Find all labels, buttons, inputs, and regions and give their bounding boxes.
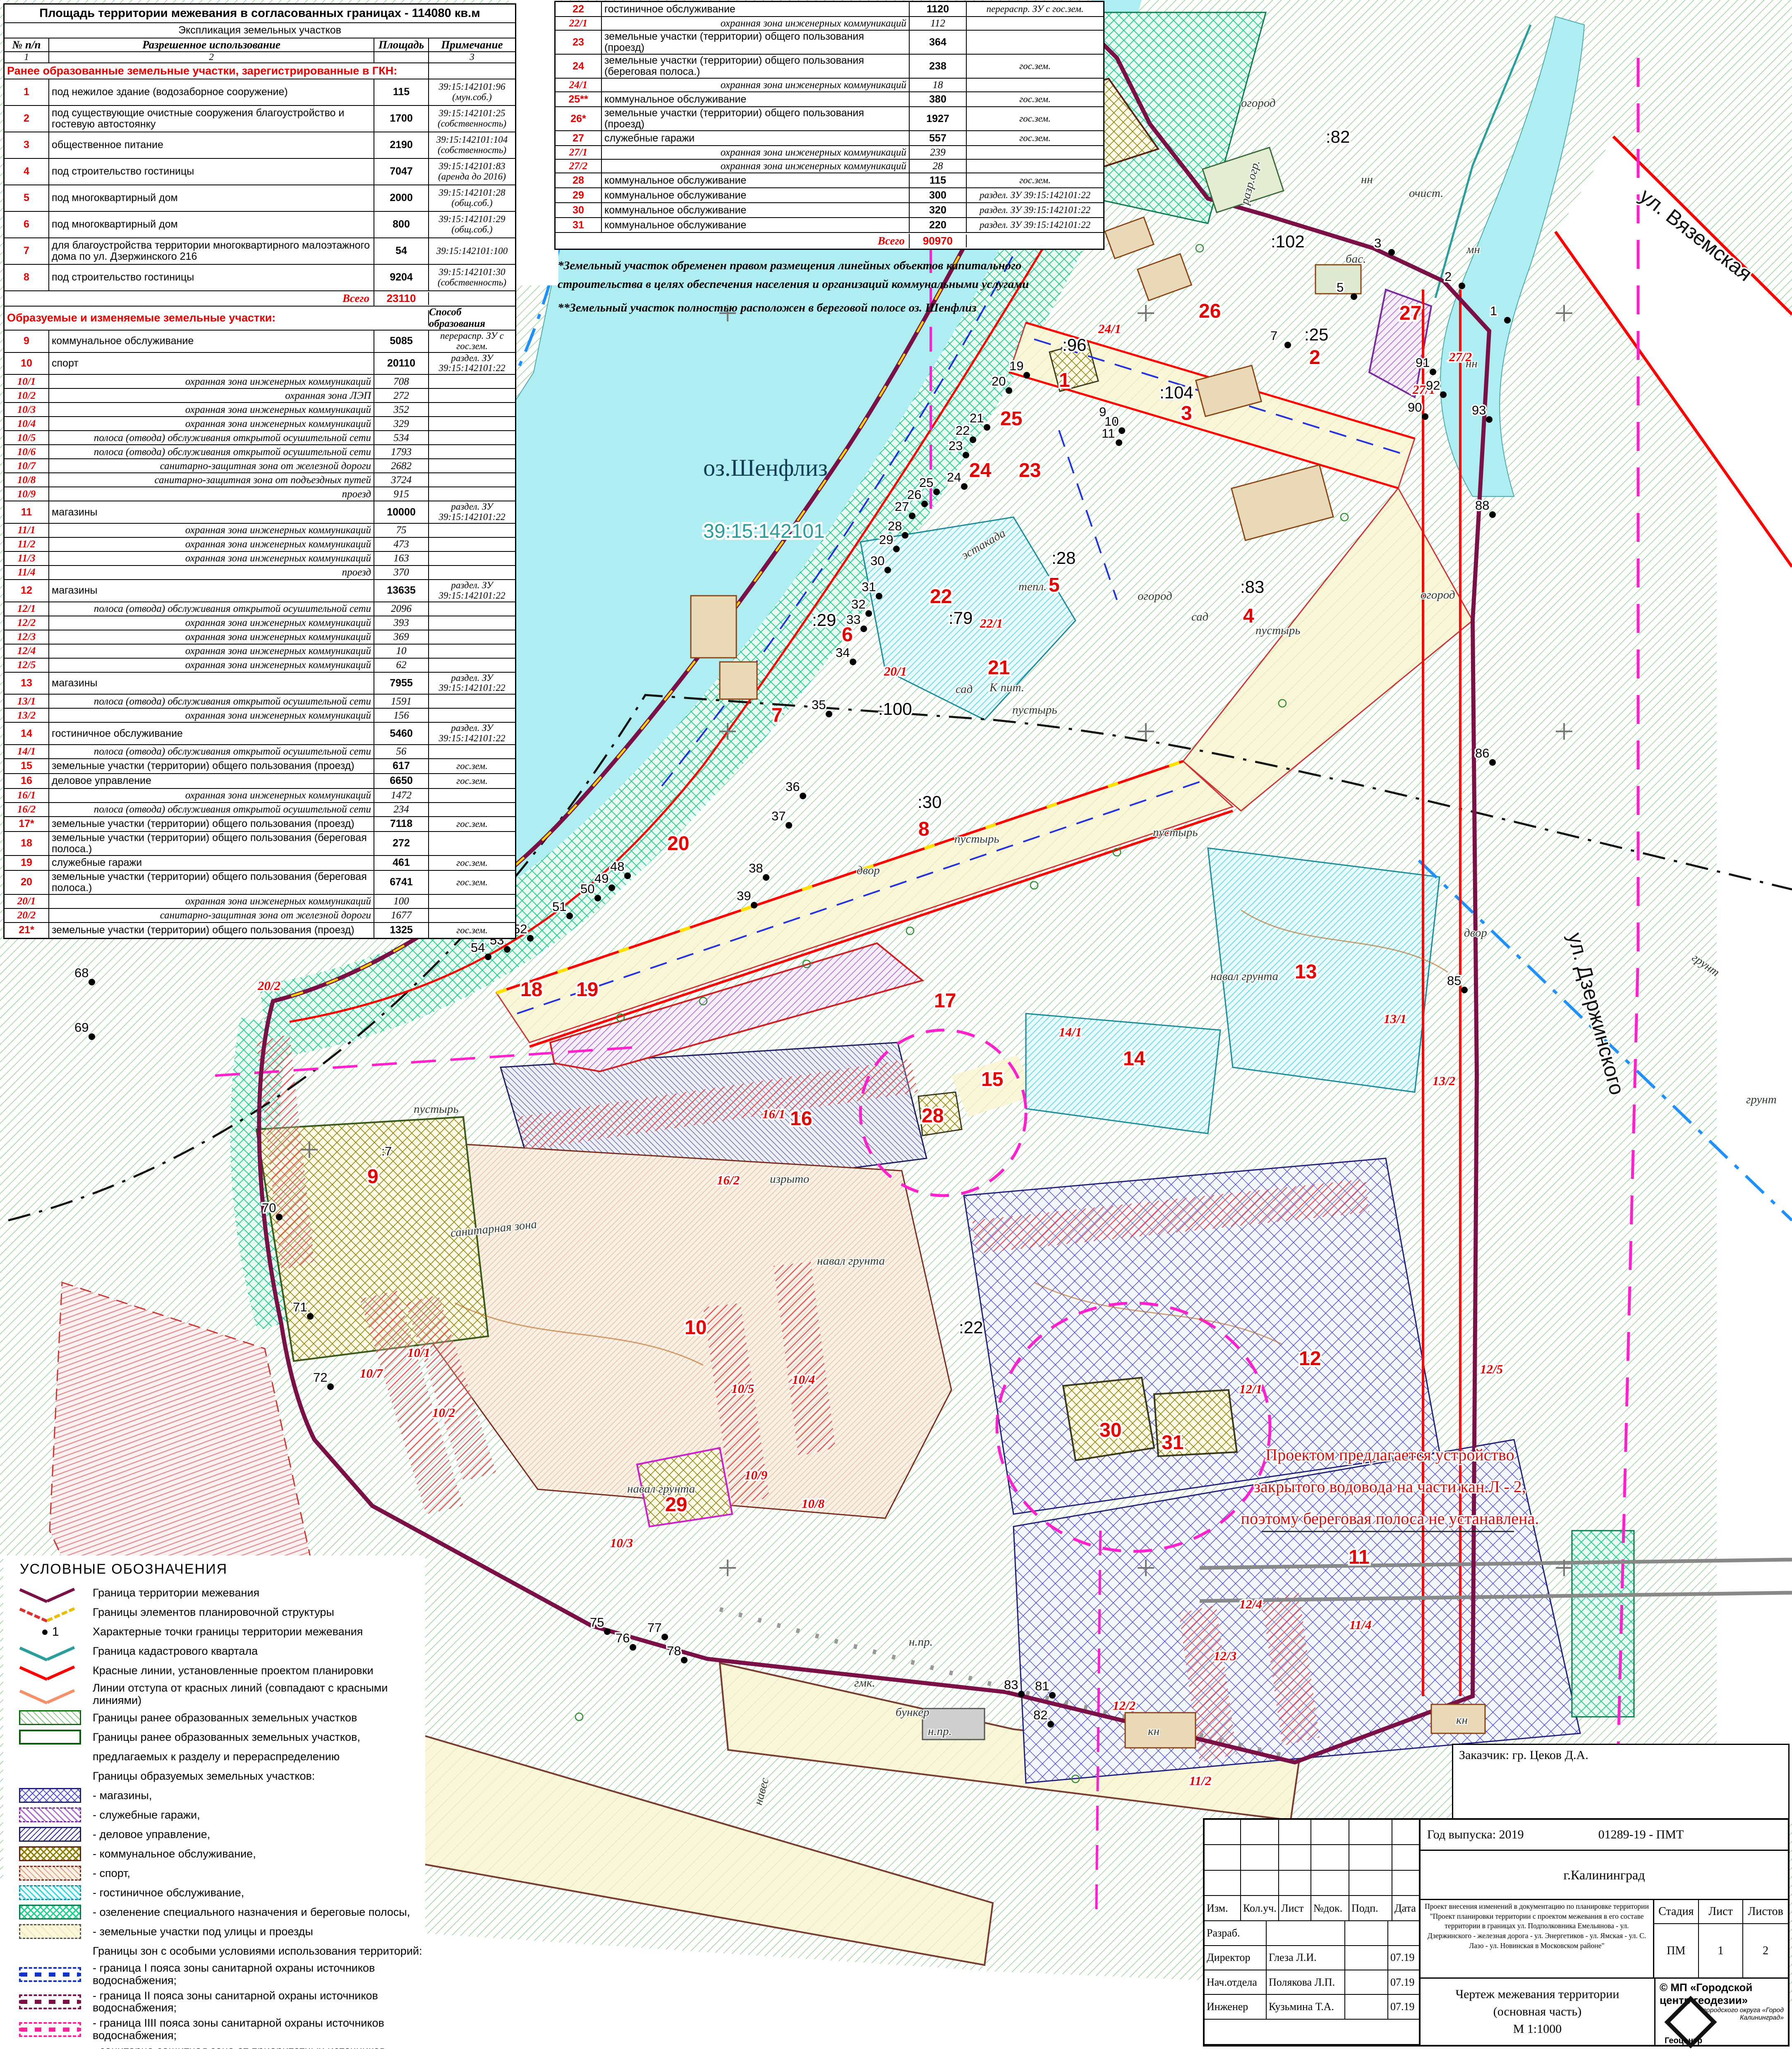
area-value: 800 xyxy=(374,212,429,237)
legend-label: Граница кадастрового квартала xyxy=(93,1645,258,1658)
staff-role: Директор xyxy=(1205,1946,1267,1970)
map-label: Проектом предлагается устройство xyxy=(1265,1445,1514,1464)
staff-sign xyxy=(1345,1995,1388,2018)
legend-item: Границы элементов планировочной структур… xyxy=(7,1604,425,1621)
permitted-use: коммунальное обслуживание xyxy=(602,203,910,217)
map-label: 12/5 xyxy=(1480,1362,1503,1376)
stamp-col-data: Дата xyxy=(1392,1896,1418,1920)
map-label: :28 xyxy=(1052,548,1076,568)
area-value: 1677 xyxy=(374,909,429,922)
stamp-project-row: Проект внесения изменений в документацию… xyxy=(1421,1900,1788,1979)
parcel-number: 6 xyxy=(5,212,49,237)
col-header-use: Разрешенное использование xyxy=(49,38,374,51)
total-value: 90970 xyxy=(910,235,967,247)
footnote: **Земельный участок полностью расположен… xyxy=(558,299,1108,317)
table-row: 13/1полоса (отвода) обслуживания открыто… xyxy=(5,695,515,709)
boundary-point-dot xyxy=(1023,372,1030,379)
map-label: 76 xyxy=(616,1631,630,1645)
boundary-point-dot xyxy=(89,1033,95,1040)
map-label: 4 xyxy=(1243,605,1254,627)
map-label: 30 xyxy=(870,554,884,568)
note-value: раздел. ЗУ 39:15:142101:22 xyxy=(429,580,515,602)
staff-role: Разраб. xyxy=(1205,1921,1267,1945)
map-label: 35 xyxy=(812,697,826,712)
note-value: 39:15:142101:104 (собственность) xyxy=(429,132,515,158)
map-label: бас. xyxy=(1346,252,1366,266)
permitted-use: санитарно-защитная зона от железной доро… xyxy=(49,909,374,922)
boundary-point-dot xyxy=(800,793,806,799)
boundary-point-dot xyxy=(89,979,95,985)
map-label: 14/1 xyxy=(1059,1025,1082,1039)
total-label: Всего xyxy=(556,234,910,248)
map-label: :100 xyxy=(878,699,912,719)
map-label: н.пр. xyxy=(928,1725,952,1738)
parcel-number: 21* xyxy=(5,923,49,938)
legend-swatch-icon xyxy=(19,1905,81,1920)
parcel-number: 17* xyxy=(5,817,49,831)
staff-date: 07.19 xyxy=(1388,1995,1418,2018)
permitted-use: полоса (отвода) обслуживания открытой ос… xyxy=(49,745,374,758)
table-row: 16/1охранная зона инженерных коммуникаци… xyxy=(5,789,515,803)
map-label: 91 xyxy=(1416,355,1430,370)
permitted-use: охранная зона инженерных коммуникаций xyxy=(49,524,374,537)
map-label: нн xyxy=(1466,357,1478,370)
note-value xyxy=(967,160,1103,173)
map-label: 10/8 xyxy=(802,1496,825,1511)
map-label: 26 xyxy=(907,487,921,502)
parcel-number: 22 xyxy=(556,2,602,16)
area-value: 18 xyxy=(910,79,967,91)
boundary-point-dot xyxy=(850,659,856,665)
parcel-number: 2 xyxy=(5,106,49,132)
map-label: пустырь xyxy=(954,832,999,846)
parcel-number: 29 xyxy=(556,188,602,202)
parcel-number: 13 xyxy=(5,673,49,694)
map-label: навал грунта xyxy=(1210,970,1278,983)
map-label: 78 xyxy=(667,1644,681,1658)
table-row: 29коммунальное обслуживание300раздел. ЗУ… xyxy=(556,188,1103,203)
legend-item: - граница II пояса зоны санитарной охран… xyxy=(7,1990,425,2014)
note-value: гос.зем. xyxy=(429,759,515,773)
map-label: 3 xyxy=(1374,236,1381,250)
table-row: 12/2охранная зона инженерных коммуникаци… xyxy=(5,616,515,630)
note-value: 39:15:142101:25 (собственность) xyxy=(429,106,515,132)
map-label: 69 xyxy=(74,1020,89,1035)
stamp-year: Год выпуска: 2019 xyxy=(1427,1828,1524,1842)
map-label: 38 xyxy=(749,861,763,875)
map-label: 30 xyxy=(1100,1419,1121,1441)
building-kn xyxy=(1125,1713,1195,1748)
table-row: 31коммунальное обслуживание220раздел. ЗУ… xyxy=(556,218,1103,233)
legend-swatch-icon: ● 1 xyxy=(19,1625,81,1639)
map-label: 10/9 xyxy=(745,1468,767,1482)
boundary-point-dot xyxy=(786,822,792,829)
table-row: 10/8санитарно-защитная зона от подъездны… xyxy=(5,473,515,487)
legend-item: - деловое управление, xyxy=(7,1826,425,1843)
boundary-point-dot xyxy=(1006,387,1012,394)
legend-label: предлагаемых к разделу и перераспределен… xyxy=(93,1751,340,1763)
area-value: 54 xyxy=(374,238,429,264)
legend-label: - санитарно-защитная зона от приоритетны… xyxy=(93,2045,425,2049)
stamp-project-desc: Проект внесения изменений в документацию… xyxy=(1421,1900,1654,1977)
parcel-number: 10/9 xyxy=(5,487,49,501)
colnum-3: 3 xyxy=(429,52,515,62)
map-label: 13/1 xyxy=(1384,1011,1406,1026)
area-value: 3724 xyxy=(374,473,429,486)
map-label: 90 xyxy=(1408,400,1422,415)
area-value: 62 xyxy=(374,659,429,672)
legend-swatch-icon xyxy=(19,1605,81,1620)
note-value xyxy=(429,645,515,658)
org-cell: © МП «Городской центр геодезии» городско… xyxy=(1655,1979,1788,2045)
legend-item: - граница IIII пояса зоны санитарной охр… xyxy=(7,2017,425,2042)
parcel-number: 11/4 xyxy=(5,566,49,579)
map-label: 24/1 xyxy=(1098,321,1121,336)
area-value: 461 xyxy=(374,856,429,870)
boundary-point-dot xyxy=(624,872,631,879)
note-value xyxy=(429,524,515,537)
legend-label: Границы ранее образованных земельных уча… xyxy=(93,1731,360,1744)
parcel-number: 10/1 xyxy=(5,375,49,388)
staff-sign xyxy=(1345,1970,1388,1994)
area-value: 7955 xyxy=(374,673,429,694)
parcel-number: 7 xyxy=(5,238,49,264)
stamp-right: Год выпуска: 2019 01289-19 - ПМТ г.Калин… xyxy=(1421,1820,1788,2045)
boundary-point-dot xyxy=(661,1634,668,1640)
map-label: 12/3 xyxy=(1214,1649,1236,1663)
map-label: :79 xyxy=(949,608,973,628)
legend-label: - граница II пояса зоны санитарной охран… xyxy=(93,1990,425,2014)
table-row: 10/1охранная зона инженерных коммуникаци… xyxy=(5,375,515,389)
table2-body: 22гостиничное обслуживание1120перераспр.… xyxy=(556,2,1103,249)
map-label: 13/2 xyxy=(1433,1074,1455,1088)
table-row: 8под строительство гостиницы920439:15:14… xyxy=(5,265,515,291)
map-label: сад xyxy=(1191,610,1208,623)
map-label: 31 xyxy=(862,580,876,594)
table-row: 10/7санитарно-защитная зона от железной … xyxy=(5,459,515,473)
legend-label: Граница территории межевания xyxy=(93,1587,259,1599)
map-label: 27 xyxy=(1399,302,1421,324)
map-label: :25 xyxy=(1304,325,1328,344)
map-label: кн xyxy=(1456,1713,1468,1727)
map-label: 20/2 xyxy=(257,978,280,993)
legend-label: Границы ранее образованных земельных уча… xyxy=(93,1712,357,1724)
parcel-number: 10/6 xyxy=(5,445,49,458)
stage-headers: Стадия Лист Листов xyxy=(1654,1900,1788,1924)
permitted-use: земельные участки (территории) общего по… xyxy=(602,107,910,130)
note-value: 39:15:142101:83 (аренда до 2016) xyxy=(429,159,515,185)
table-row: 13магазины7955раздел. ЗУ 39:15:142101:22 xyxy=(5,673,515,695)
boundary-point-dot xyxy=(826,711,832,717)
staff-name: Полякова Л.П. xyxy=(1267,1970,1345,1994)
map-label: 11 xyxy=(1349,1546,1370,1568)
permitted-use: санитарно-защитная зона от железной доро… xyxy=(49,459,374,472)
col-header-num: № п/п xyxy=(5,38,49,51)
permitted-use: охранная зона инженерных коммуникаций xyxy=(49,630,374,644)
map-label: 36 xyxy=(786,779,800,794)
staff-date: 07.19 xyxy=(1388,1946,1418,1970)
map-label: 68 xyxy=(74,966,89,980)
map-label: 93 xyxy=(1472,403,1486,417)
parcel-number: 10/5 xyxy=(5,431,49,444)
note-value xyxy=(429,695,515,708)
staff-row: ДиректорГлеза Л.И.07.19 xyxy=(1205,1946,1419,1970)
parcel-number: 26* xyxy=(556,107,602,130)
parcel-number: 28 xyxy=(556,173,602,187)
parcel-number: 13/1 xyxy=(5,695,49,708)
legend-label: Линии отступа от красных линий (совпадаю… xyxy=(93,1682,425,1706)
map-label: 32 xyxy=(851,597,865,611)
boundary-point-dot xyxy=(609,884,615,891)
table-row: 11/3охранная зона инженерных коммуникаци… xyxy=(5,552,515,566)
permitted-use: под многоквартирный дом xyxy=(49,185,374,211)
map-label: 22 xyxy=(956,423,970,438)
legend-swatch-icon xyxy=(19,1788,81,1803)
section-row: Образуемые и изменяемые земельные участк… xyxy=(5,307,515,331)
map-label: 16/1 xyxy=(762,1107,785,1121)
permitted-use: полоса (отвода) обслуживания открытой ос… xyxy=(49,602,374,616)
map-label: 12/4 xyxy=(1239,1597,1262,1611)
permitted-use: под строительство гостиницы xyxy=(49,265,374,290)
map-label: 20/1 xyxy=(884,664,907,678)
table-row: 6под многоквартирный дом80039:15:142101:… xyxy=(5,212,515,238)
list-header: Лист xyxy=(1699,1900,1744,1923)
legend-label: - озеленение специального назначения и б… xyxy=(93,1906,410,1919)
area-value: 75 xyxy=(374,524,429,537)
boundary-point-dot xyxy=(933,489,940,495)
legend-swatch-icon xyxy=(19,1663,81,1678)
map-label: 11/2 xyxy=(1189,1773,1211,1788)
map-label: закрытого водовода на части кан.Л - 2, xyxy=(1254,1477,1526,1496)
stamp-year-row: Год выпуска: 2019 01289-19 - ПМТ xyxy=(1421,1820,1788,1851)
note-value xyxy=(429,389,515,402)
map-label: :7 xyxy=(381,1145,392,1158)
map-label: 10 xyxy=(685,1317,707,1339)
permitted-use: коммунальное обслуживание xyxy=(602,92,910,106)
table-row: 10/4охранная зона инженерных коммуникаци… xyxy=(5,417,515,431)
legend-swatch-icon xyxy=(19,1827,81,1842)
area-value: 2000 xyxy=(374,185,429,211)
permitted-use: охранная зона инженерных коммуникаций xyxy=(49,417,374,430)
boundary-point-dot xyxy=(763,874,769,881)
stamp-city-row: г.Калининград xyxy=(1421,1851,1788,1900)
stamp-col-dok: №док. xyxy=(1311,1896,1349,1920)
table-row: 22гостиничное обслуживание1120перераспр.… xyxy=(556,2,1103,17)
legend-item: - земельные участки под улицы и проезды xyxy=(7,1923,425,1940)
drawing-title-2: (основная часть) xyxy=(1493,2003,1581,2020)
table-gap xyxy=(509,0,558,285)
permitted-use: магазины xyxy=(49,580,374,602)
area-value: 115 xyxy=(374,79,429,105)
map-label: 10/7 xyxy=(360,1366,383,1380)
permitted-use: земельные участки (территории) общего по… xyxy=(49,817,374,831)
boundary-point-dot xyxy=(681,1657,688,1663)
note-value xyxy=(429,538,515,551)
parcel-number: 10/7 xyxy=(5,459,49,472)
map-label: 7 xyxy=(1270,328,1277,343)
section-label: Ранее образованные земельные участки, за… xyxy=(5,63,429,79)
map-label: 1 xyxy=(1490,304,1497,318)
staff-date xyxy=(1388,1921,1418,1945)
parcel-number: 18 xyxy=(5,832,49,855)
table-row: 23земельные участки (территории) общего … xyxy=(556,31,1103,55)
permitted-use: охранная зона инженерных коммуникаций xyxy=(49,403,374,416)
boundary-point-dot xyxy=(1504,317,1511,324)
map-label: очист. xyxy=(1409,187,1444,200)
area-value: 1591 xyxy=(374,695,429,708)
permitted-use: проезд xyxy=(49,566,374,579)
area-value: 2682 xyxy=(374,459,429,472)
boundary-point-dot xyxy=(1422,413,1428,420)
table-row: 4под строительство гостиницы704739:15:14… xyxy=(5,159,515,185)
map-label: 75 xyxy=(590,1615,604,1630)
permitted-use: земельные участки (территории) общего по… xyxy=(49,923,374,938)
map-label: 16 xyxy=(790,1108,812,1130)
map-label: пустырь xyxy=(1255,624,1301,637)
note-value xyxy=(429,803,515,816)
listov-header: Листов xyxy=(1743,1900,1788,1923)
permitted-use: служебные гаражи xyxy=(602,131,910,145)
parcel-number: 12/3 xyxy=(5,630,49,644)
boundary-point-dot xyxy=(276,1214,283,1220)
table-row: 27/2охранная зона инженерных коммуникаци… xyxy=(556,160,1103,173)
boundary-point-dot xyxy=(1489,759,1496,766)
map-label: 70 xyxy=(262,1201,276,1215)
boundary-point-dot xyxy=(884,567,891,573)
map-label: 7 xyxy=(771,705,783,726)
table-row: 25**коммунальное обслуживание380гос.зем. xyxy=(556,92,1103,107)
stamp-blank-row xyxy=(1205,2020,1419,2045)
parcel-number: 11 xyxy=(5,501,49,523)
legend-item: - озеленение специального назначения и б… xyxy=(7,1904,425,1920)
table-row: 26*земельные участки (территории) общего… xyxy=(556,107,1103,131)
parcel-number: 14 xyxy=(5,723,49,744)
map-label: 25 xyxy=(1000,408,1022,430)
parcel-number: 4 xyxy=(5,159,49,185)
boundary-point-dot xyxy=(876,593,882,599)
note-value: гос.зем. xyxy=(429,817,515,831)
parcel-number: 15 xyxy=(5,759,49,773)
parcel-number: 16/2 xyxy=(5,803,49,816)
note-value: раздел. ЗУ 39:15:142101:22 xyxy=(967,203,1103,217)
parcel-number: 11/2 xyxy=(5,538,49,551)
table-row: 19служебные гаражи461гос.зем. xyxy=(5,856,515,871)
parcel-number: 9 xyxy=(5,331,49,352)
boundary-point-dot xyxy=(1461,987,1468,993)
table-row: 12/5охранная зона инженерных коммуникаци… xyxy=(5,659,515,673)
drawing-scale: М 1:1000 xyxy=(1513,2020,1562,2038)
note-value xyxy=(429,431,515,444)
parcel-number: 31 xyxy=(556,218,602,232)
area-value: 915 xyxy=(374,487,429,501)
building xyxy=(691,596,736,658)
stamp-staff-rows: Разраб.ДиректорГлеза Л.И.07.19Нач.отдела… xyxy=(1205,1921,1419,2019)
table1-body: Ранее образованные земельные участки, за… xyxy=(5,63,515,938)
stamp-col-list: Лист xyxy=(1279,1896,1311,1920)
legend-item: - служебные гаражи, xyxy=(7,1807,425,1823)
note-value: гос.зем. xyxy=(429,774,515,788)
note-value: раздел. ЗУ 39:15:142101:22 xyxy=(967,218,1103,232)
permitted-use: служебные гаражи xyxy=(49,856,374,870)
map-label: 9 xyxy=(367,1166,379,1188)
area-value: 7047 xyxy=(374,159,429,185)
note-value: раздел. ЗУ 39:15:142101:22 xyxy=(429,501,515,523)
table-row: 12/1полоса (отвода) обслуживания открыто… xyxy=(5,602,515,616)
boundary-point-dot xyxy=(566,913,573,919)
stamp-col-koluch: Кол.уч. xyxy=(1241,1896,1279,1920)
note-value: гос.зем. xyxy=(967,131,1103,145)
map-label: 10/2 xyxy=(432,1405,455,1420)
map-label: пустырь xyxy=(1153,826,1198,839)
permitted-use: охранная зона инженерных коммуникаций xyxy=(49,616,374,630)
area-value: 10000 xyxy=(374,501,429,523)
map-label: 39:15:142101 xyxy=(703,520,825,542)
map-label: 18 xyxy=(520,979,542,1001)
legend-swatch-icon xyxy=(19,1710,81,1725)
staff-row: Разраб. xyxy=(1205,1921,1419,1946)
permitted-use: охранная зона инженерных коммуникаций xyxy=(49,538,374,551)
permitted-use: полоса (отвода) обслуживания открытой ос… xyxy=(49,695,374,708)
parcel-number: 12/4 xyxy=(5,645,49,658)
parcel-number: 25** xyxy=(556,92,602,106)
map-label: 31 xyxy=(1162,1432,1183,1454)
permitted-use: земельные участки (территории) общего по… xyxy=(602,55,910,78)
org-name: © МП «Городской центр геодезии» xyxy=(1660,1981,1784,2007)
area-value: 1927 xyxy=(910,107,967,130)
map-label: 10/4 xyxy=(792,1372,815,1387)
map-label: тепл. xyxy=(1018,580,1047,593)
table-row: 24/1охранная зона инженерных коммуникаци… xyxy=(556,79,1103,92)
permitted-use: охранная зона инженерных коммуникаций xyxy=(602,17,910,30)
map-label: 16/2 xyxy=(717,1173,740,1187)
table-row: 20/2санитарно-защитная зона от железной … xyxy=(5,909,515,923)
section-row: Ранее образованные земельные участки, за… xyxy=(5,63,515,79)
parcel-number: 27 xyxy=(556,131,602,145)
legend-label: Границы зон с особыми условиями использо… xyxy=(93,1945,422,1958)
map-label: 12 xyxy=(1299,1348,1321,1370)
boundary-point-dot xyxy=(485,954,491,960)
map-label: 77 xyxy=(647,1620,661,1635)
map-label: 21 xyxy=(988,657,1010,679)
map-label: изрыто xyxy=(770,1172,809,1186)
permitted-use: земельные участки (территории) общего по… xyxy=(602,31,910,54)
boundary-point-dot xyxy=(970,436,976,443)
boundary-point-dot xyxy=(630,1644,636,1651)
map-label: 17 xyxy=(934,990,956,1012)
area-value: 13635 xyxy=(374,580,429,602)
table-row: 12/4охранная зона инженерных коммуникаци… xyxy=(5,645,515,659)
area-value: 28 xyxy=(910,160,967,173)
table-row: 21*земельные участки (территории) общего… xyxy=(5,923,515,938)
table-row: 11магазины10000раздел. ЗУ 39:15:142101:2… xyxy=(5,501,515,524)
permitted-use: полоса (отвода) обслуживания открытой ос… xyxy=(49,803,374,816)
zone-railway-green xyxy=(1572,1531,1634,1717)
boundary-point-dot xyxy=(1018,1691,1025,1697)
note-value: 39:15:142101:29 (общ.соб.) xyxy=(429,212,515,237)
note-value: гос.зем. xyxy=(967,92,1103,106)
legend-item: Граница территории межевания xyxy=(7,1585,425,1601)
area-value: 393 xyxy=(374,616,429,630)
area-value: 329 xyxy=(374,417,429,430)
total-row: Всего23110 xyxy=(5,291,515,307)
area-value: 20110 xyxy=(374,353,429,374)
map-label: навал грунта xyxy=(817,1254,885,1268)
area-value: 617 xyxy=(374,759,429,773)
permitted-use: охранная зона инженерных коммуникаций xyxy=(49,375,374,388)
note-value: перераспр. ЗУ с гос.зем. xyxy=(967,2,1103,16)
area-value: 6741 xyxy=(374,871,429,894)
parcel-number: 13/2 xyxy=(5,709,49,722)
